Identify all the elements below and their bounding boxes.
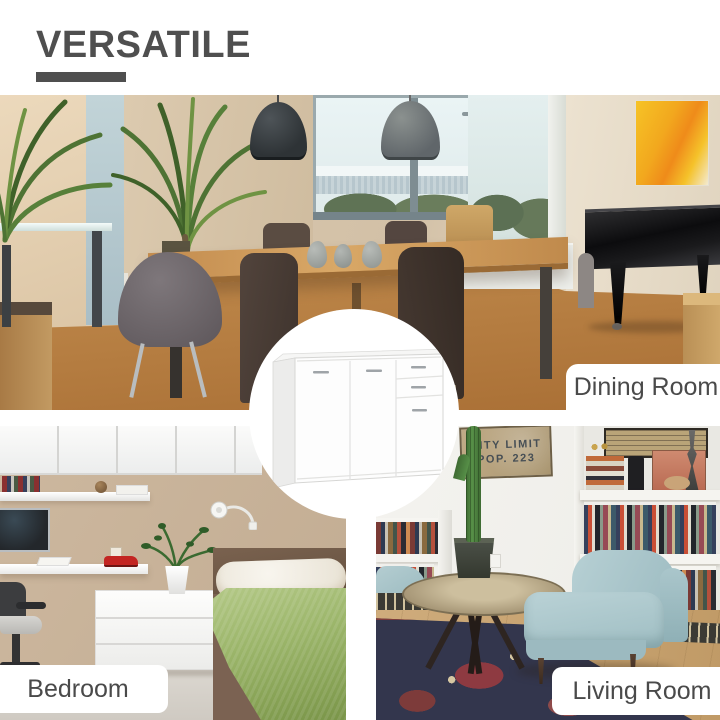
drawer-chest — [95, 590, 216, 670]
window-sill — [313, 212, 468, 220]
palm-plant-left — [0, 95, 115, 245]
white-books — [116, 485, 148, 495]
product-collage: VERSATILE — [0, 0, 720, 720]
table-leg-2 — [540, 267, 552, 379]
shelf-board — [376, 554, 446, 562]
armchair-skirt — [526, 640, 646, 660]
vase — [307, 241, 327, 268]
title-underline — [36, 72, 126, 82]
chair-partial — [578, 253, 594, 308]
decor-ball — [95, 481, 107, 493]
office-chair-seat — [0, 616, 42, 634]
toy-car — [104, 556, 138, 567]
dining-room-label: Dining Room — [566, 364, 720, 410]
sign-line2: POP. 223 — [477, 452, 536, 466]
page-title: VERSATILE — [36, 24, 251, 67]
open-book — [36, 557, 71, 566]
vase-2 — [334, 244, 352, 268]
wall-tv — [0, 508, 50, 552]
shelf-board-top — [580, 490, 720, 500]
bookshelf-right-mid — [584, 502, 716, 554]
wall-cabinets — [0, 426, 262, 475]
armchair-arm — [660, 568, 688, 642]
sideboard-product-image — [249, 309, 459, 519]
dining-room-label-text: Dining Room — [574, 373, 719, 402]
bedroom-label-text: Bedroom — [27, 675, 128, 704]
product-spotlight-circle — [249, 309, 459, 519]
brass-horns — [588, 440, 610, 454]
cactus — [466, 426, 481, 542]
dark-bottles — [628, 456, 644, 490]
abstract-painting — [635, 100, 709, 186]
office-chair-arm — [16, 602, 46, 609]
wall-outlet — [490, 554, 501, 568]
vase-3 — [362, 241, 382, 268]
living-room-label: Living Room — [552, 667, 720, 715]
bookshelf-left-row1 — [376, 518, 438, 556]
office-chair-post — [12, 634, 20, 664]
decor-faces — [664, 476, 690, 490]
shelf-books — [2, 476, 40, 492]
drawer-seam-2 — [96, 643, 215, 645]
console-leg — [92, 231, 102, 327]
book-stack — [586, 456, 624, 490]
drawer-seam — [96, 617, 215, 619]
living-room-label-text: Living Room — [573, 677, 712, 706]
console-leg-2 — [2, 245, 11, 327]
reading-lamp — [205, 496, 257, 530]
bedroom-label: Bedroom — [0, 665, 168, 713]
corner-post — [548, 95, 566, 260]
